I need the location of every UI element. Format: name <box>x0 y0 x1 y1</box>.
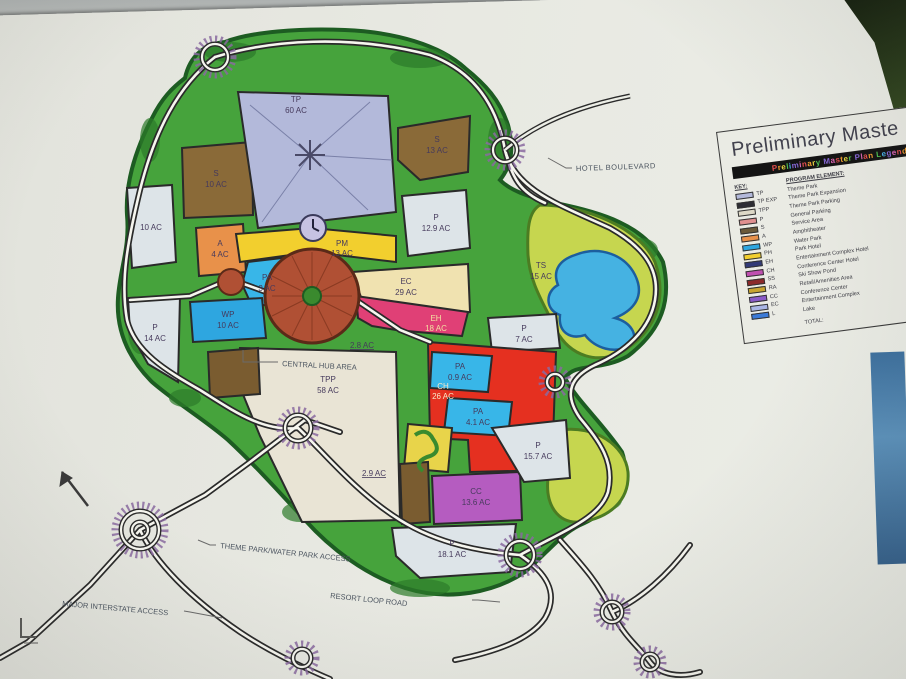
svg-text:12.9 AC: 12.9 AC <box>422 224 451 233</box>
svg-text:58 AC: 58 AC <box>317 386 339 395</box>
parcel-p7 <box>488 314 560 352</box>
photo-of-master-plan-board: TP 60 AC S 10 AC 10 AC A 4 AC PM 13 AC P… <box>0 0 906 679</box>
callout-interstate: MAJOR INTERSTATE ACCESS <box>62 599 169 617</box>
svg-text:PA: PA <box>473 407 484 416</box>
parcel-brown-bottom <box>400 462 430 524</box>
svg-text:S: S <box>434 135 439 144</box>
svg-text:13.6 AC: 13.6 AC <box>462 498 491 507</box>
svg-text:P: P <box>521 324 526 333</box>
svg-text:29 AC: 29 AC <box>395 288 417 297</box>
svg-text:26 AC: 26 AC <box>432 392 454 401</box>
svg-text:EH: EH <box>430 314 441 323</box>
svg-text:WP: WP <box>222 310 235 319</box>
svg-text:18 AC: 18 AC <box>425 324 447 333</box>
svg-text:EC: EC <box>400 277 411 286</box>
label-tp-key: TP <box>291 95 301 104</box>
west-hub-circle <box>218 269 244 295</box>
svg-text:13 AC: 13 AC <box>331 249 353 258</box>
parcel-tp <box>238 92 396 228</box>
svg-text:TPP: TPP <box>320 375 336 384</box>
north-arrow <box>60 472 88 506</box>
callout-hotel-boulevard: HOTEL BOULEVARD <box>576 161 656 173</box>
svg-text:P: P <box>535 441 540 450</box>
scale-mark <box>8 618 48 648</box>
svg-text:7 AC: 7 AC <box>515 335 533 344</box>
svg-text:2.9 AC: 2.9 AC <box>362 469 386 478</box>
svg-text:TS: TS <box>536 261 546 270</box>
svg-text:10 AC: 10 AC <box>140 223 162 232</box>
svg-text:PA: PA <box>455 362 466 371</box>
svg-text:14 AC: 14 AC <box>144 334 166 343</box>
svg-text:CH: CH <box>437 382 449 391</box>
svg-text:2.8 AC: 2.8 AC <box>350 341 374 350</box>
svg-text:18.1 AC: 18.1 AC <box>438 550 467 559</box>
svg-text:0.9 AC: 0.9 AC <box>448 373 472 382</box>
legend-table: KEY: PROGRAM ELEMENT: AREA: TPTheme Park… <box>734 156 906 335</box>
svg-text:13 AC: 13 AC <box>426 146 448 155</box>
svg-text:P: P <box>152 323 157 332</box>
svg-text:PM: PM <box>336 239 348 248</box>
label-tp-area: 60 AC <box>285 106 307 115</box>
svg-text:A: A <box>217 239 223 248</box>
legend-panel: Preliminary Maste Preliminary Master Pla… <box>716 101 906 344</box>
svg-text:S: S <box>213 169 218 178</box>
svg-text:PA: PA <box>262 273 273 282</box>
parcel-brown-small <box>208 348 260 398</box>
parcel-wp <box>190 298 266 342</box>
parcel-p129 <box>402 190 470 256</box>
svg-text:10 AC: 10 AC <box>205 180 227 189</box>
svg-text:3 AC: 3 AC <box>258 284 276 293</box>
svg-text:15 AC: 15 AC <box>530 272 552 281</box>
svg-text:P: P <box>449 539 454 548</box>
svg-text:P: P <box>433 213 438 222</box>
svg-text:4.1 AC: 4.1 AC <box>466 418 490 427</box>
svg-text:CC: CC <box>470 487 482 496</box>
legend-swatch <box>751 312 770 320</box>
svg-text:4 AC: 4 AC <box>211 250 229 259</box>
svg-text:10 AC: 10 AC <box>217 321 239 330</box>
svg-text:15.7 AC: 15.7 AC <box>524 452 553 461</box>
